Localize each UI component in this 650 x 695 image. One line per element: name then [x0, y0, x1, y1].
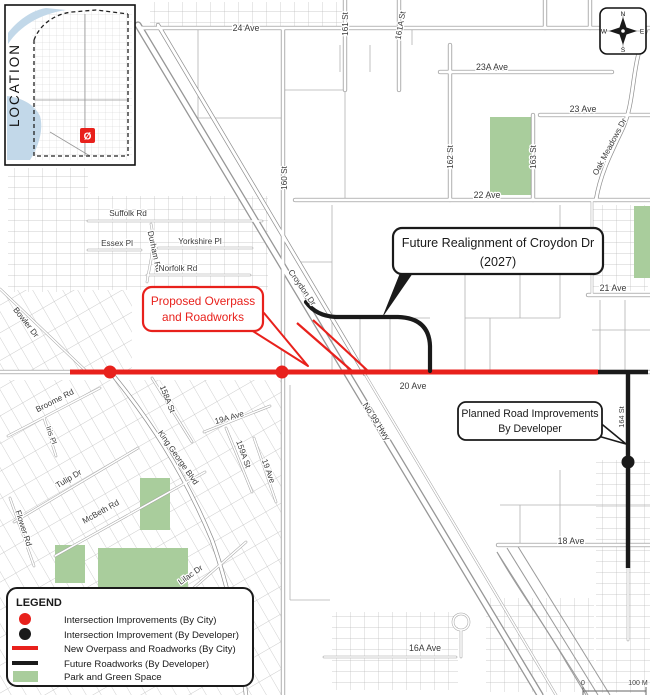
street-label-24-ave: 24 Ave: [233, 23, 260, 33]
compass-w-label: W: [601, 29, 608, 36]
street-label-oak-meadows-dr: Oak Meadows Dr: [591, 117, 629, 177]
street-label-162-st: 162 St: [446, 144, 455, 168]
street-label-161-st: 161 St: [341, 11, 350, 35]
scale-zero-label: 0: [581, 680, 585, 687]
callout-text-line1: Proposed Overpass: [151, 294, 255, 308]
street-label-norfolk-rd: Norfolk Rd: [159, 264, 198, 273]
callout-text-line1: Future Realignment of Croydon Dr: [402, 236, 595, 250]
street-label-22-ave: 22 Ave: [474, 190, 501, 200]
compass-rose: N E S W: [600, 8, 646, 54]
inset-title: LOCATION: [7, 43, 22, 127]
street-label-16a-ave: 16A Ave: [409, 643, 441, 653]
compass-e-label: E: [640, 29, 645, 36]
legend-item-label: Intersection Improvement (By Developer): [64, 630, 239, 641]
street-label-essex-pl: Essex Pl: [101, 239, 133, 248]
legend: LEGEND Intersection Improvements (By Cit…: [7, 588, 253, 686]
callout-text-line1: Planned Road Improvements: [461, 408, 598, 420]
street-label-21-ave: 21 Ave: [600, 283, 627, 293]
map-svg: 24 Ave 161 St 161A St 23A Ave 23 Ave 162…: [0, 0, 650, 695]
legend-symbol-green-square: [13, 671, 38, 682]
street-label-23-ave: 23 Ave: [570, 104, 597, 114]
compass-center: [621, 29, 625, 33]
street-label-18-ave: 18 Ave: [558, 536, 585, 546]
street-label-no-99-hwy: No 99 Hwy: [361, 401, 393, 443]
street-label-164-st: 164 St: [617, 406, 626, 427]
legend-title: LEGEND: [16, 597, 62, 609]
legend-item-label: New Overpass and Roadworks (By City): [64, 644, 236, 655]
street-label-yorkshire-pl: Yorkshire Pl: [178, 237, 222, 246]
callout-text-line2: (2027): [480, 255, 516, 269]
intersection-marker-city-2: [276, 366, 289, 379]
callout-text-line2: By Developer: [498, 423, 562, 435]
compass-s-label: S: [621, 47, 626, 54]
inset-marker-glyph: Ø: [84, 132, 92, 143]
legend-item-label: Intersection Improvements (By City): [64, 615, 216, 626]
park-sw-3: [55, 545, 85, 583]
street-label-23a-ave: 23A Ave: [476, 62, 508, 72]
callout-text-line2: and Roadworks: [162, 310, 244, 324]
park-east-strip: [634, 206, 650, 278]
park-163st: [490, 117, 533, 195]
intersection-marker-city-1: [104, 366, 117, 379]
map-page: 24 Ave 161 St 161A St 23A Ave 23 Ave 162…: [0, 0, 650, 695]
legend-symbol-black-dot: [19, 628, 31, 640]
legend-item-label: Future Roadworks (By Developer): [64, 659, 209, 670]
street-label-20-ave: 20 Ave: [400, 381, 427, 391]
scale-max-label: 100 M: [628, 680, 648, 687]
compass-n-label: N: [621, 11, 626, 18]
legend-item-label: Park and Green Space: [64, 672, 162, 683]
street-label-160-st: 160 St: [280, 165, 289, 189]
park-sw-1: [140, 478, 170, 530]
intersection-marker-developer: [622, 456, 635, 469]
callout-leader: [382, 273, 413, 318]
location-inset: Ø LOCATION: [5, 5, 135, 165]
street-label-163-st: 163 St: [529, 144, 538, 168]
legend-symbol-red-dot: [19, 613, 31, 625]
street-label-161a-st: 161A St: [394, 10, 408, 41]
street-label-suffolk-rd: Suffolk Rd: [109, 209, 147, 218]
callout-planned-road: Planned Road Improvements By Developer: [458, 402, 626, 444]
callout-future-realignment: Future Realignment of Croydon Dr (2027): [382, 228, 603, 318]
